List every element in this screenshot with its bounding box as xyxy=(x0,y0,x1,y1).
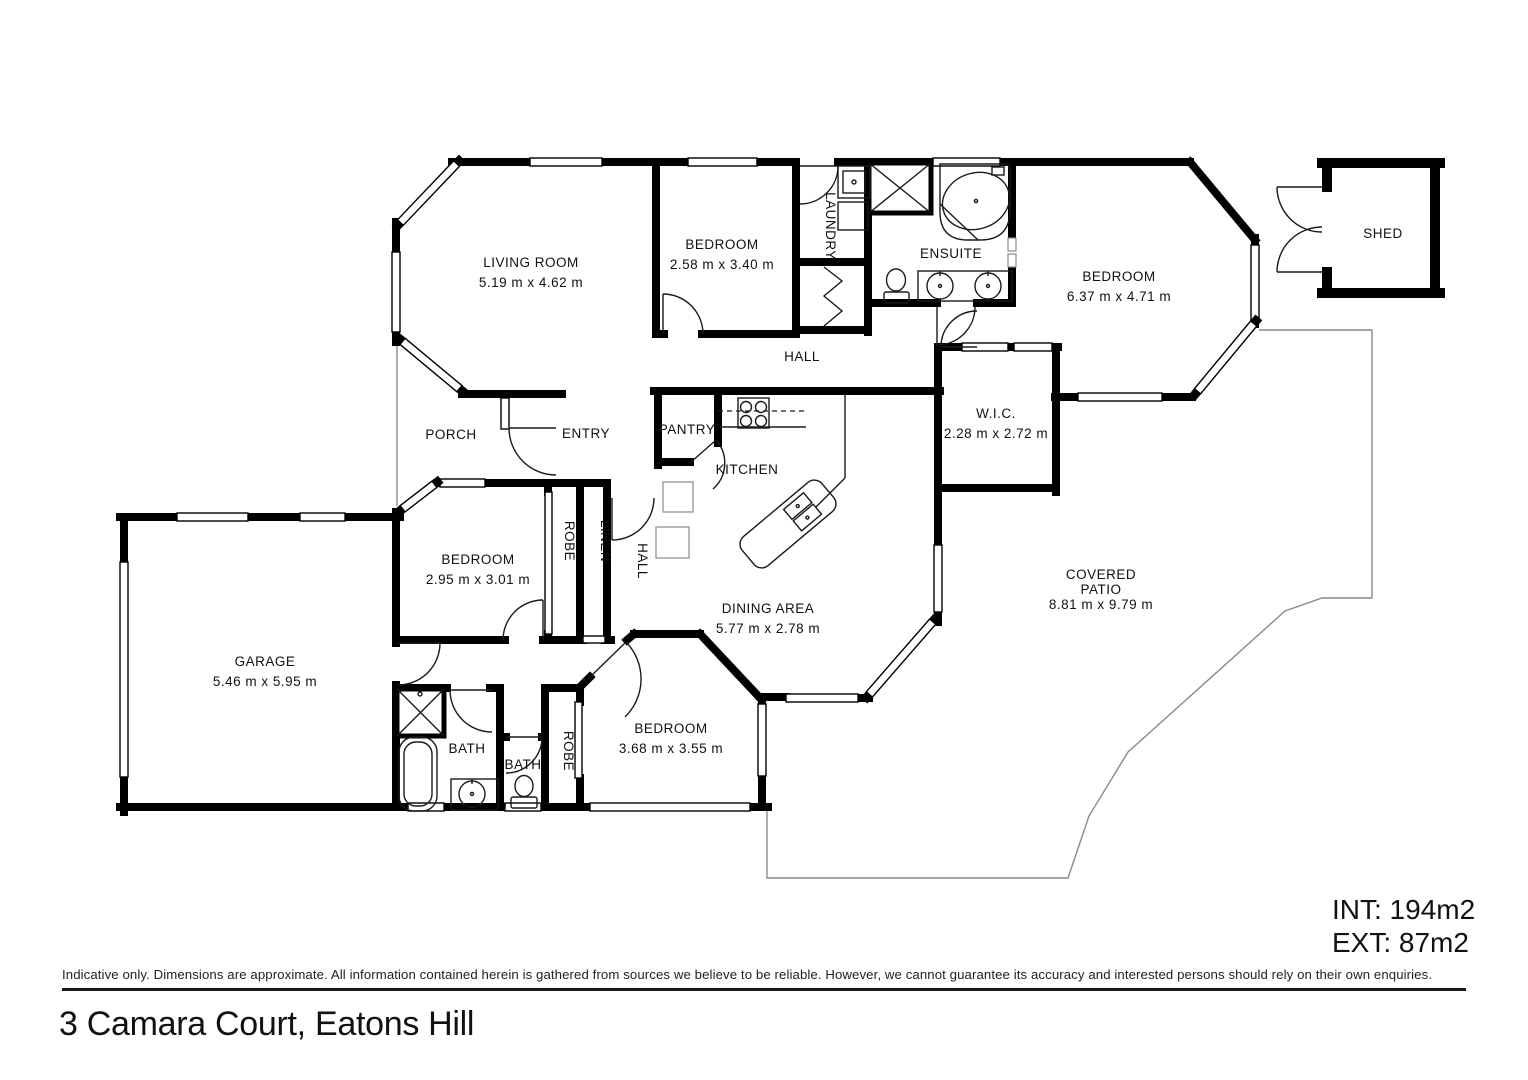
furniture-square-2 xyxy=(656,527,689,558)
page-title: 3 Camara Court, Eatons Hill xyxy=(59,1005,474,1044)
room-label-linen: LINEN xyxy=(598,520,613,562)
room-label-bath-wc: BATH xyxy=(504,757,541,772)
room-label-master-bedroom: BEDROOM6.37 m x 4.71 m xyxy=(1067,269,1171,304)
external-area: EXT: 87m2 xyxy=(1332,926,1475,959)
internal-area: INT: 194m2 xyxy=(1332,893,1475,926)
master-bedroom-door xyxy=(941,311,977,347)
ensuite-vanity-icon xyxy=(918,271,1012,301)
counter-edge xyxy=(720,395,845,507)
bath-door xyxy=(450,690,492,732)
room-label-bedroom-2: BEDROOM2.58 m x 3.40 m xyxy=(670,237,774,272)
room-label-bedroom-3: BEDROOM2.95 m x 3.01 m xyxy=(426,552,530,587)
room-label-wic: W.I.C.2.28 m x 2.72 m xyxy=(944,406,1048,441)
spa-bath-icon xyxy=(935,164,1017,240)
room-label-ensuite: ENSUITE xyxy=(920,246,982,261)
bedroom-4-door xyxy=(588,642,641,717)
room-label-porch: PORCH xyxy=(425,427,476,442)
floor-plan-canvas: LIVING ROOM5.19 m x 4.62 mBEDROOM2.58 m … xyxy=(0,0,1528,1080)
room-label-dining-area: DINING AREA5.77 m x 2.78 m xyxy=(716,601,820,636)
bathtub-icon xyxy=(399,737,437,811)
room-label-robe-bed4: ROBE xyxy=(561,731,576,771)
room-label-shed: SHED xyxy=(1363,226,1403,241)
room-label-robe-bed3: ROBE xyxy=(562,521,577,561)
ensuite-toilet-icon xyxy=(884,269,909,303)
washer-icon xyxy=(838,202,868,230)
room-label-living-room: LIVING ROOM5.19 m x 4.62 m xyxy=(479,255,583,290)
garage-door xyxy=(398,643,440,685)
shed-doors xyxy=(1277,187,1322,272)
front-door xyxy=(509,428,556,475)
room-label-kitchen: KITCHEN xyxy=(716,462,779,477)
bedroom-3-door xyxy=(503,600,543,640)
room-label-laundry: LAUNDRY xyxy=(823,192,838,260)
room-label-bath-main: BATH xyxy=(448,741,485,756)
room-label-entry: ENTRY xyxy=(562,426,610,441)
room-label-hall-main: HALL xyxy=(784,349,820,364)
ensuite-door xyxy=(937,307,975,345)
divider-line xyxy=(62,988,1466,991)
room-label-covered-patio: COVEREDPATIO8.81 m x 9.79 m xyxy=(1049,567,1153,612)
hall-door xyxy=(612,498,654,540)
kitchen-island-icon xyxy=(736,476,840,572)
room-label-pantry: PANTRY xyxy=(659,422,716,437)
laundry-tub-icon xyxy=(838,166,870,198)
disclaimer-text: Indicative only. Dimensions are approxim… xyxy=(62,967,1472,982)
bedroom-2-door xyxy=(663,294,703,334)
area-summary: INT: 194m2 EXT: 87m2 xyxy=(1332,893,1475,959)
furniture-square-1 xyxy=(663,482,693,512)
room-label-hall-passage: HALL xyxy=(635,543,650,579)
floor-plan-page: LIVING ROOM5.19 m x 4.62 mBEDROOM2.58 m … xyxy=(0,0,1528,1080)
room-label-bedroom-4: BEDROOM3.68 m x 3.55 m xyxy=(619,721,723,756)
stove-icon xyxy=(738,398,769,428)
hall-closet-bifold xyxy=(824,267,842,326)
room-label-garage: GARAGE5.46 m x 5.95 m xyxy=(213,654,317,689)
walls xyxy=(120,162,1440,812)
